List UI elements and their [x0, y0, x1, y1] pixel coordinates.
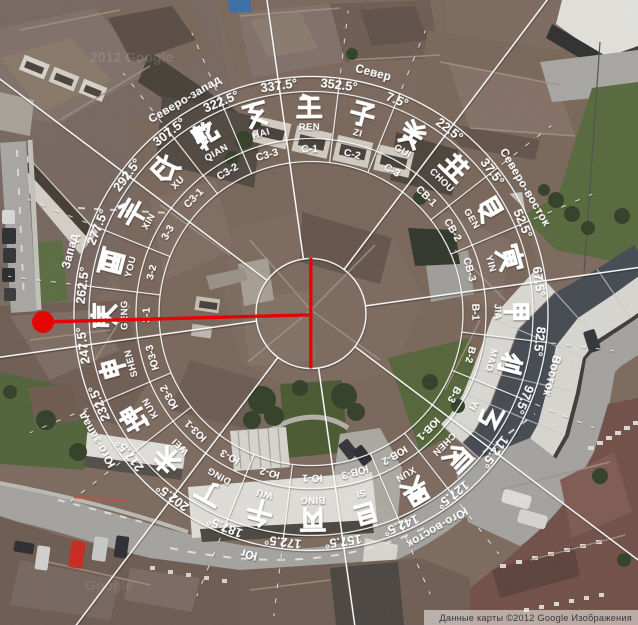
svg-text:В-1: В-1 [469, 304, 481, 321]
svg-text:Google: Google [85, 577, 133, 593]
svg-text:Ю-1: Ю-1 [302, 472, 322, 484]
svg-text:С-1: С-1 [301, 143, 318, 155]
svg-text:BING: BING [300, 494, 325, 505]
svg-text:2012 Google: 2012 Google [90, 49, 173, 65]
svg-text:Данные карты ©2012 Google Изоб: Данные карты ©2012 Google Изображения [439, 613, 632, 623]
svg-text:JIA: JIA [492, 304, 503, 320]
svg-text:REN: REN [299, 122, 320, 133]
svg-text:GENG: GENG [119, 300, 130, 330]
